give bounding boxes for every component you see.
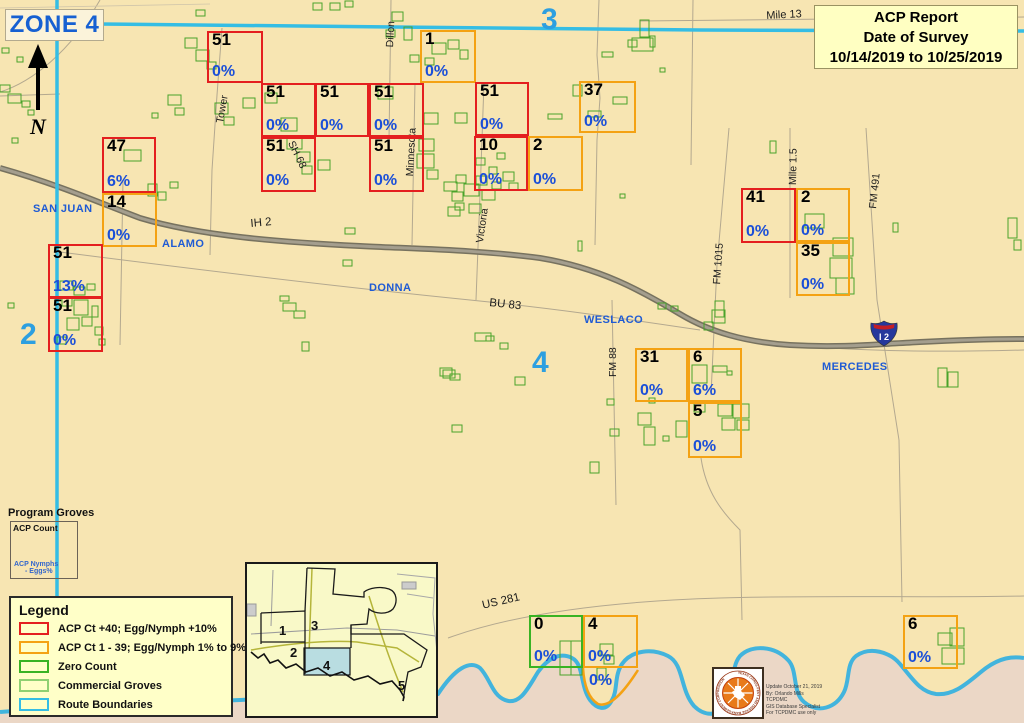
- acp-count-label: ACP Count: [13, 523, 58, 533]
- acp-nymphs-label: ACP Nymphs: [14, 561, 58, 568]
- grove: [607, 399, 614, 405]
- grove: [12, 138, 18, 143]
- legend: Legend ACP Ct +40; Egg/Nymph +10%ACP Ct …: [9, 596, 233, 717]
- report-subtitle: Date of Survey: [815, 28, 1017, 48]
- road-label-fm-88: FM 88: [607, 347, 619, 377]
- road-label-mile-13: Mile 13: [766, 8, 802, 22]
- grove: [770, 141, 776, 153]
- block-count: 51: [374, 136, 393, 156]
- grove: [170, 182, 178, 188]
- block-pct: 0%: [266, 117, 289, 135]
- block-pct: 0%: [746, 223, 769, 241]
- block-count: 5: [693, 401, 702, 421]
- grove: [424, 113, 438, 124]
- legend-swatch-0: [19, 622, 49, 635]
- survey-block-51: 510%: [475, 82, 529, 136]
- zone-marker-3: 3: [541, 3, 558, 37]
- legend-swatch-2: [19, 660, 49, 673]
- seal-drawing: TEXAS CITRUS PEST AND DISEASE MANAGEMENT…: [714, 669, 762, 717]
- survey-block-47: 476%: [102, 137, 156, 193]
- block-count: 0: [534, 614, 543, 634]
- grove: [444, 182, 457, 191]
- survey-block-51: 510%: [261, 83, 316, 137]
- grove: [243, 98, 255, 108]
- block-count: 6: [693, 347, 702, 367]
- legend-label-4: Route Boundaries: [58, 699, 153, 711]
- credit-line: Update October 21, 2019: [766, 684, 878, 691]
- grove: [196, 10, 205, 16]
- block-count: 2: [533, 135, 542, 155]
- block-count: 51: [320, 82, 339, 102]
- grove: [345, 1, 353, 7]
- legend-item-3: Commercial Groves: [19, 677, 223, 694]
- credit-line: By: Orlando Mills: [766, 691, 878, 698]
- survey-block-51: 5113%: [48, 244, 103, 298]
- grove: [638, 413, 651, 425]
- block-pct: 0%: [107, 227, 130, 245]
- block-pct: 0%: [480, 116, 503, 134]
- block-pct: 0%: [584, 113, 607, 131]
- grove: [475, 333, 491, 341]
- block-pct: 0%: [908, 649, 931, 667]
- grove: [283, 303, 296, 311]
- block-count: 51: [266, 82, 285, 102]
- tcpdmc-seal: TEXAS CITRUS PEST AND DISEASE MANAGEMENT…: [712, 667, 764, 719]
- grove: [452, 425, 462, 432]
- credit-line: GIS Database Specialist: [766, 704, 878, 711]
- grove: [515, 377, 525, 385]
- route-boundaries: [57, 0, 1024, 600]
- credit-line: TCPDMC: [766, 697, 878, 704]
- grove: [185, 38, 197, 48]
- block-count: 37: [584, 80, 603, 100]
- grove: [404, 27, 412, 40]
- grove: [158, 192, 166, 200]
- block-count: 1: [425, 29, 434, 49]
- block-pct: 0%: [801, 276, 824, 294]
- block-count: 51: [374, 82, 393, 102]
- grove: [590, 462, 599, 473]
- program-groves-key: ACP Count ACP Nymphs - Eggs%: [10, 521, 78, 579]
- block-count: 51: [480, 81, 499, 101]
- legend-item-4: Route Boundaries: [19, 696, 223, 713]
- grove: [715, 301, 724, 317]
- block-count: 41: [746, 187, 765, 207]
- block-count: 14: [107, 192, 126, 212]
- block-pct: 0%: [589, 672, 612, 690]
- survey-block-6: 60%: [903, 615, 958, 669]
- grove: [294, 311, 305, 318]
- inset-county-lines: [247, 574, 436, 652]
- legend-swatch-4: [19, 698, 49, 711]
- inset-zone-2: 2: [290, 645, 297, 660]
- report-dates: 10/14/2019 to 10/25/2019: [815, 48, 1017, 68]
- grove: [660, 68, 665, 72]
- grove: [644, 427, 655, 445]
- survey-block-river: 0%: [586, 656, 636, 690]
- grove: [343, 260, 352, 266]
- block-count: 6: [908, 614, 917, 634]
- block-count: 51: [53, 243, 72, 263]
- city-label-donna: DONNA: [369, 282, 411, 294]
- legend-item-2: Zero Count: [19, 658, 223, 675]
- survey-block-51: 510%: [369, 137, 424, 192]
- grove: [500, 343, 508, 349]
- block-pct: 6%: [693, 382, 716, 400]
- grove: [676, 421, 687, 437]
- block-count: 31: [640, 347, 659, 367]
- survey-block-51: 510%: [207, 31, 263, 83]
- survey-block-10: 100%: [474, 136, 528, 191]
- block-pct: 0%: [533, 171, 556, 189]
- block-pct: 0%: [53, 332, 76, 350]
- grove: [1008, 218, 1017, 238]
- zone-title: ZONE 4: [5, 9, 104, 41]
- block-pct: 0%: [479, 171, 502, 189]
- grove: [602, 52, 613, 57]
- grove: [392, 12, 403, 21]
- survey-block-51: 510%: [261, 137, 316, 192]
- survey-block-51: 510%: [315, 83, 369, 137]
- city-label-san-juan: SAN JUAN: [33, 203, 92, 215]
- acp-survey-map: I 2 N ZONE 4 ACP Report Date of Survey 1…: [0, 0, 1024, 723]
- block-count: 51: [53, 296, 72, 316]
- grove: [17, 57, 23, 62]
- interstate-2-label: I 2: [879, 332, 889, 342]
- grove: [893, 223, 898, 232]
- north-arrow: N: [24, 42, 64, 138]
- legend-swatch-1: [19, 641, 49, 654]
- survey-block-0: 00%: [529, 615, 583, 668]
- zone-title-text: ZONE 4: [10, 11, 100, 39]
- grove: [280, 296, 289, 301]
- grove: [318, 160, 330, 170]
- report-title: ACP Report: [815, 8, 1017, 28]
- block-count: 51: [212, 30, 231, 50]
- block-count: 51: [266, 136, 285, 156]
- survey-block-5: 50%: [688, 402, 742, 458]
- grove: [486, 336, 494, 341]
- road-label-dillon: Dillon: [384, 21, 397, 48]
- legend-item-1: ACP Ct 1 - 39; Egg/Nymph 1% to 9%: [19, 639, 223, 656]
- inset-zone-4: 4: [323, 658, 331, 673]
- grove: [313, 3, 322, 10]
- north-label: N: [29, 114, 47, 138]
- block-pct: 0%: [266, 172, 289, 190]
- grove: [548, 114, 562, 119]
- grove: [620, 194, 625, 198]
- legend-title: Legend: [19, 602, 223, 618]
- grove: [482, 190, 495, 200]
- legend-label-2: Zero Count: [58, 661, 117, 673]
- survey-block-35: 350%: [796, 242, 850, 296]
- block-count: 10: [479, 135, 498, 155]
- road-label-mile-1.5: Mile 1.5: [787, 148, 800, 185]
- survey-block-14: 140%: [102, 193, 157, 247]
- grove: [168, 95, 181, 105]
- block-pct: 6%: [107, 173, 130, 191]
- block-count: 35: [801, 241, 820, 261]
- grove: [410, 55, 419, 62]
- survey-block-2: 20%: [796, 188, 850, 242]
- grove: [175, 108, 184, 115]
- road-label-ih-2: IH 2: [250, 216, 272, 230]
- block-pct: 0%: [693, 438, 716, 456]
- block-pct: 0%: [801, 222, 824, 240]
- credit-line: For TCPDMC use only: [766, 710, 878, 717]
- north-arrow-shaft: [36, 66, 40, 110]
- survey-block-41: 410%: [741, 188, 796, 243]
- grove: [938, 368, 947, 387]
- map-credits: Update October 21, 2019 By: Orlando Mill…: [766, 684, 878, 717]
- block-count: 4: [588, 614, 597, 634]
- grove: [663, 436, 669, 441]
- program-groves-title: Program Groves: [8, 507, 94, 519]
- survey-block-37: 370%: [579, 81, 636, 133]
- grove: [2, 48, 9, 53]
- legend-items: ACP Ct +40; Egg/Nymph +10%ACP Ct 1 - 39;…: [19, 620, 223, 713]
- city-label-mercedes: MERCEDES: [822, 361, 888, 373]
- block-pct: 0%: [534, 648, 557, 666]
- legend-swatch-3: [19, 679, 49, 692]
- grove: [452, 192, 463, 201]
- inset-overview-map: 1 2 3 4 5: [245, 562, 438, 718]
- city-label-alamo: ALAMO: [162, 238, 204, 250]
- legend-label-3: Commercial Groves: [58, 680, 162, 692]
- survey-block-1: 10%: [420, 30, 476, 83]
- inset-zone-1: 1: [279, 623, 286, 638]
- block-count: 2: [801, 187, 810, 207]
- grove: [302, 342, 309, 351]
- zone-marker-4: 4: [532, 346, 549, 380]
- north-arrow-head: [28, 44, 48, 68]
- block-count: 47: [107, 136, 126, 156]
- block-pct: 0%: [374, 117, 397, 135]
- grove: [427, 170, 438, 179]
- block-pct: 0%: [320, 117, 343, 135]
- block-pct: 0%: [425, 63, 448, 81]
- legend-label-1: ACP Ct 1 - 39; Egg/Nymph 1% to 9%: [58, 642, 246, 654]
- grove: [448, 207, 460, 216]
- survey-block-6: 66%: [688, 348, 742, 402]
- inset-zone-3: 3: [311, 618, 318, 633]
- grove: [948, 372, 958, 387]
- survey-block-2: 20%: [528, 136, 583, 191]
- block-pct: 0%: [640, 382, 663, 400]
- legend-label-0: ACP Ct +40; Egg/Nymph +10%: [58, 623, 217, 635]
- grove: [330, 3, 340, 10]
- block-pct: 13%: [53, 278, 85, 296]
- survey-block-31: 310%: [635, 348, 688, 402]
- inset-zone-5: 5: [398, 678, 405, 693]
- grove: [455, 113, 467, 123]
- city-label-weslaco: WESLACO: [584, 314, 643, 326]
- survey-block-51: 510%: [369, 83, 424, 137]
- report-box: ACP Report Date of Survey 10/14/2019 to …: [814, 5, 1018, 69]
- acp-eggs-label: - Eggs%: [25, 568, 53, 575]
- grove: [578, 241, 582, 251]
- zone-marker-2: 2: [20, 318, 37, 352]
- grove: [1014, 240, 1021, 250]
- inset-map-drawing: 1 2 3 4 5: [247, 564, 436, 716]
- grove: [152, 113, 158, 118]
- block-pct: 0%: [212, 63, 235, 81]
- grove: [8, 303, 14, 308]
- survey-block-51: 510%: [48, 297, 103, 352]
- grove: [345, 228, 355, 234]
- legend-item-0: ACP Ct +40; Egg/Nymph +10%: [19, 620, 223, 637]
- block-pct: 0%: [374, 172, 397, 190]
